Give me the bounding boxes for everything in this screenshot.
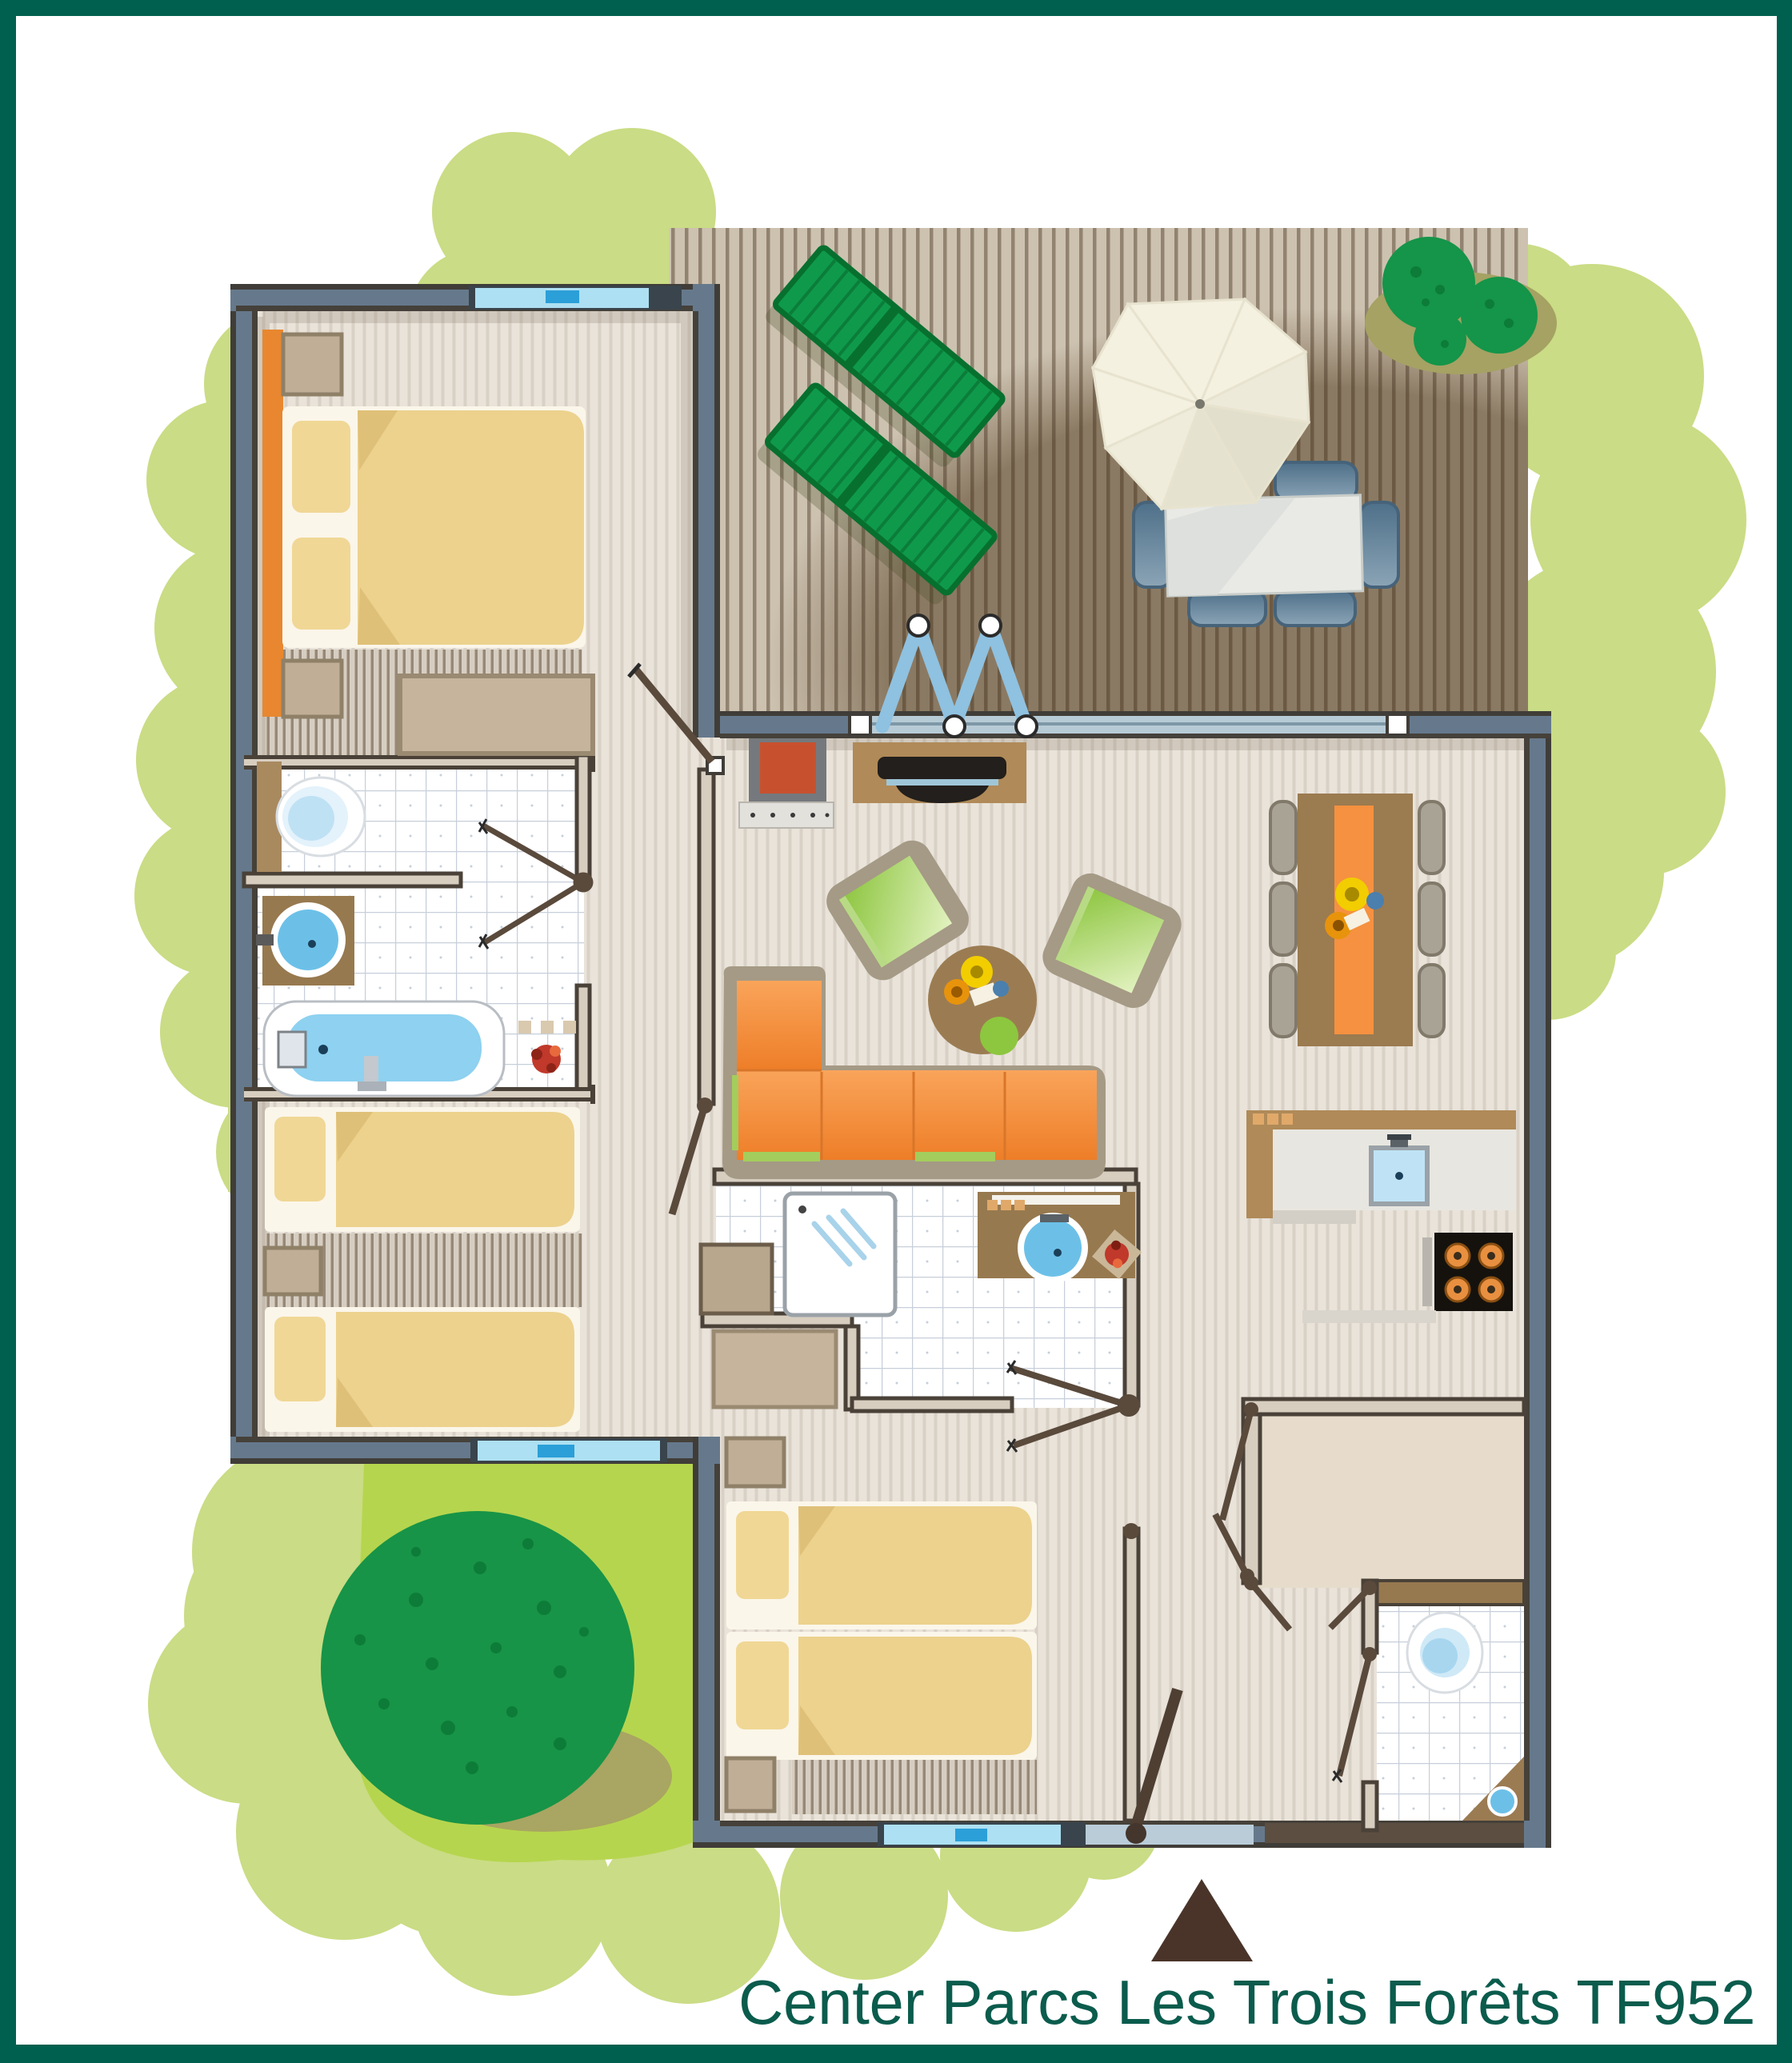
svg-text:Center Parcs Les Trois Forêts: Center Parcs Les Trois Forêts TF952 <box>738 1967 1755 2037</box>
